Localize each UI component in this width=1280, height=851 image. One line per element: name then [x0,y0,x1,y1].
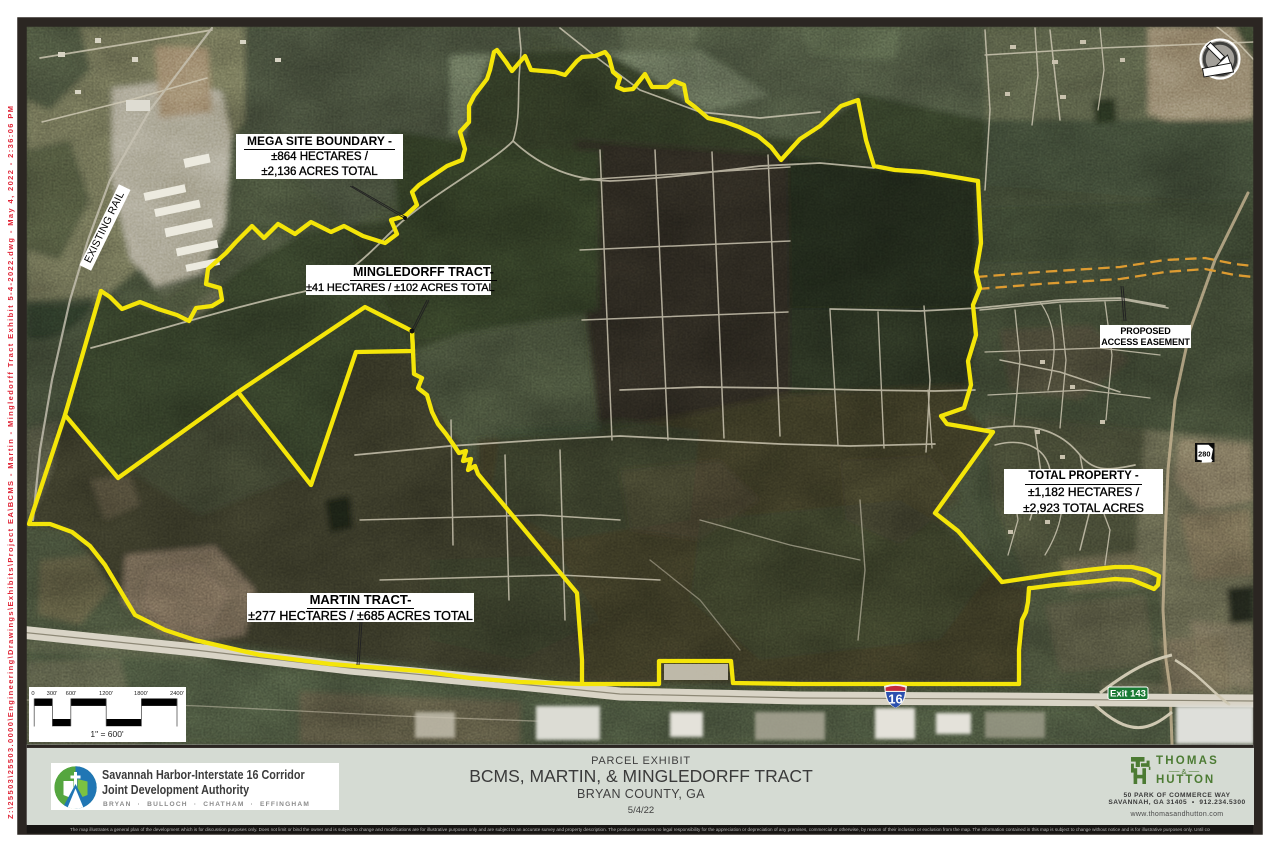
svg-text:300': 300' [47,691,58,697]
svg-text:1200': 1200' [99,691,113,697]
svg-text:Exit 143: Exit 143 [1110,689,1146,700]
svg-text:0: 0 [31,691,34,697]
svg-text:600': 600' [66,691,77,697]
svg-text:1800': 1800' [134,691,148,697]
svg-text:1" = 600': 1" = 600' [90,729,124,739]
svg-text:2400': 2400' [170,691,184,697]
svg-text:16: 16 [888,692,902,707]
svg-text:280: 280 [1198,449,1210,458]
